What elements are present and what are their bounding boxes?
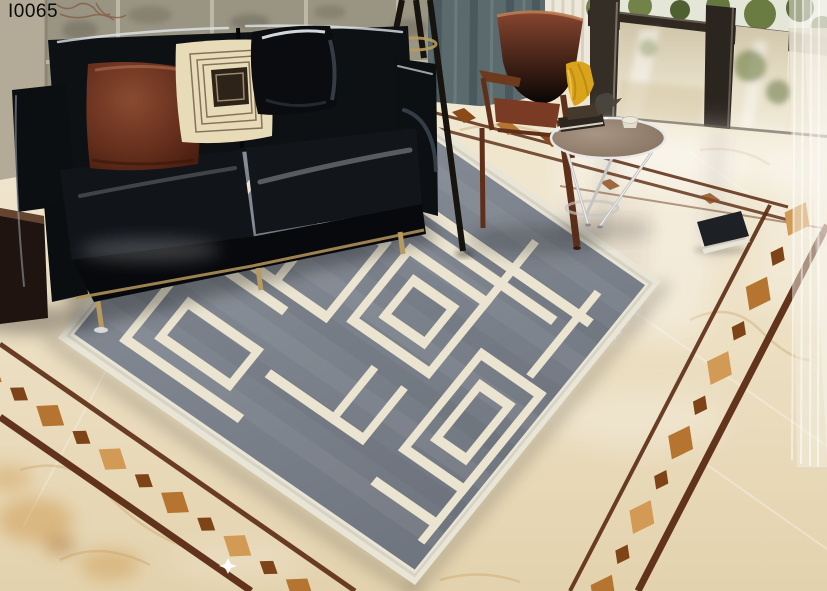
dark-side-table — [0, 208, 48, 324]
pillow-black — [251, 26, 337, 115]
photo-label: I0065 — [8, 1, 58, 23]
table-cup — [622, 117, 638, 129]
table-shadow — [554, 220, 654, 240]
living-room-photo: I0065 — [0, 0, 827, 591]
sofa-foot-glint — [94, 327, 108, 333]
scene-canvas — [0, 0, 827, 591]
